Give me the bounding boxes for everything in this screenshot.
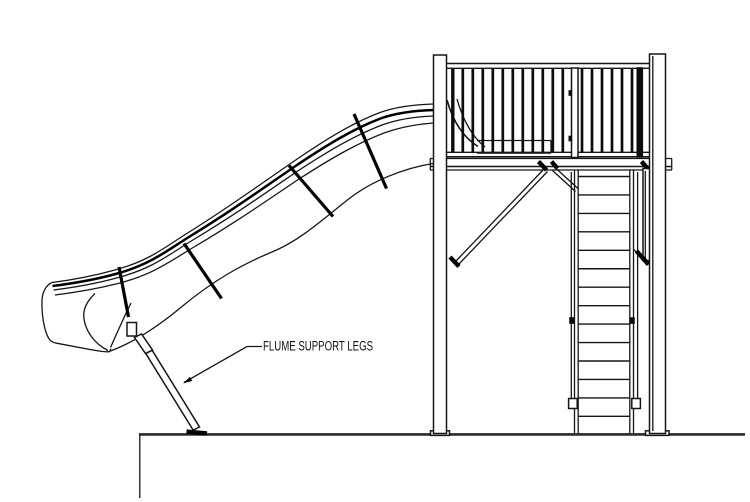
handrail-foot-right	[632, 399, 641, 409]
entry-curve-inner	[457, 99, 485, 147]
flume-tie	[289, 166, 333, 217]
drawing-sheet: FLUME SUPPORT LEGS	[0, 0, 750, 502]
flume-chute	[52, 104, 434, 352]
rail-mid-post	[572, 68, 579, 158]
leader-line	[184, 347, 262, 383]
leg-strut	[146, 350, 200, 430]
handrail-bracket-right	[630, 318, 635, 324]
ground	[139, 434, 745, 498]
flume-elevation-drawing: FLUME SUPPORT LEGS	[0, 0, 750, 502]
flume-support-leg	[127, 323, 207, 434]
baluster-group-right	[582, 69, 632, 153]
guardrail	[441, 64, 652, 158]
rail-end-post	[637, 68, 643, 158]
handrail-bracket-left	[570, 318, 575, 324]
handrail-foot-left	[569, 399, 578, 409]
brace-gusset	[539, 162, 547, 171]
flume-support-ties	[119, 114, 387, 317]
tower-platform	[430, 64, 672, 267]
stair-step-group	[579, 177, 630, 417]
leg-foot-plate	[187, 432, 208, 434]
tower-post-right	[650, 54, 666, 434]
flume-inner-line	[55, 123, 434, 295]
leg-clevis	[127, 323, 137, 337]
brace-gusset	[552, 162, 558, 169]
long-brace-line	[456, 169, 545, 262]
spout-outline	[42, 283, 111, 352]
spout-inner-curve	[84, 294, 108, 351]
tower-post-left	[434, 55, 447, 434]
flume-top-edge-line	[52, 104, 434, 283]
flume-support-legs-label: FLUME SUPPORT LEGS	[263, 339, 373, 354]
flume-exit-spout	[42, 283, 131, 352]
long-brace-line	[459, 172, 548, 265]
rail-bracket	[569, 136, 572, 141]
short-brace-line	[553, 171, 576, 192]
stairs	[569, 169, 650, 434]
leg-turnbuckle	[135, 334, 153, 354]
label-annotation: FLUME SUPPORT LEGS	[183, 339, 373, 384]
rail-bracket	[569, 91, 572, 96]
